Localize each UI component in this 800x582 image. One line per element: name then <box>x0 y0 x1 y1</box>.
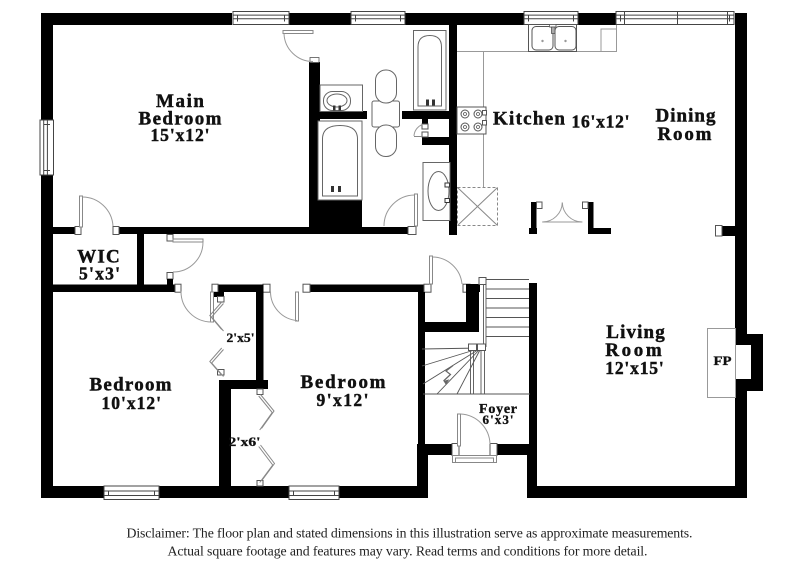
svg-text:16'x12': 16'x12' <box>572 112 630 132</box>
svg-text:9'x12': 9'x12' <box>317 390 369 410</box>
svg-text:Kitchen: Kitchen <box>493 109 565 130</box>
svg-text:5'x3': 5'x3' <box>79 264 120 284</box>
svg-text:10'x12': 10'x12' <box>102 393 162 413</box>
svg-text:15'x12': 15'x12' <box>151 125 210 145</box>
svg-text:Actual square footage and feat: Actual square footage and features may v… <box>168 544 648 559</box>
svg-text:FP: FP <box>714 353 732 368</box>
svg-text:Room: Room <box>658 124 712 145</box>
svg-text:2'x6': 2'x6' <box>229 435 261 449</box>
svg-text:Disclaimer: The floor plan and: Disclaimer: The floor plan and stated di… <box>127 526 693 541</box>
svg-text:12'x15': 12'x15' <box>605 358 664 378</box>
svg-text:2'x5': 2'x5' <box>227 331 255 345</box>
